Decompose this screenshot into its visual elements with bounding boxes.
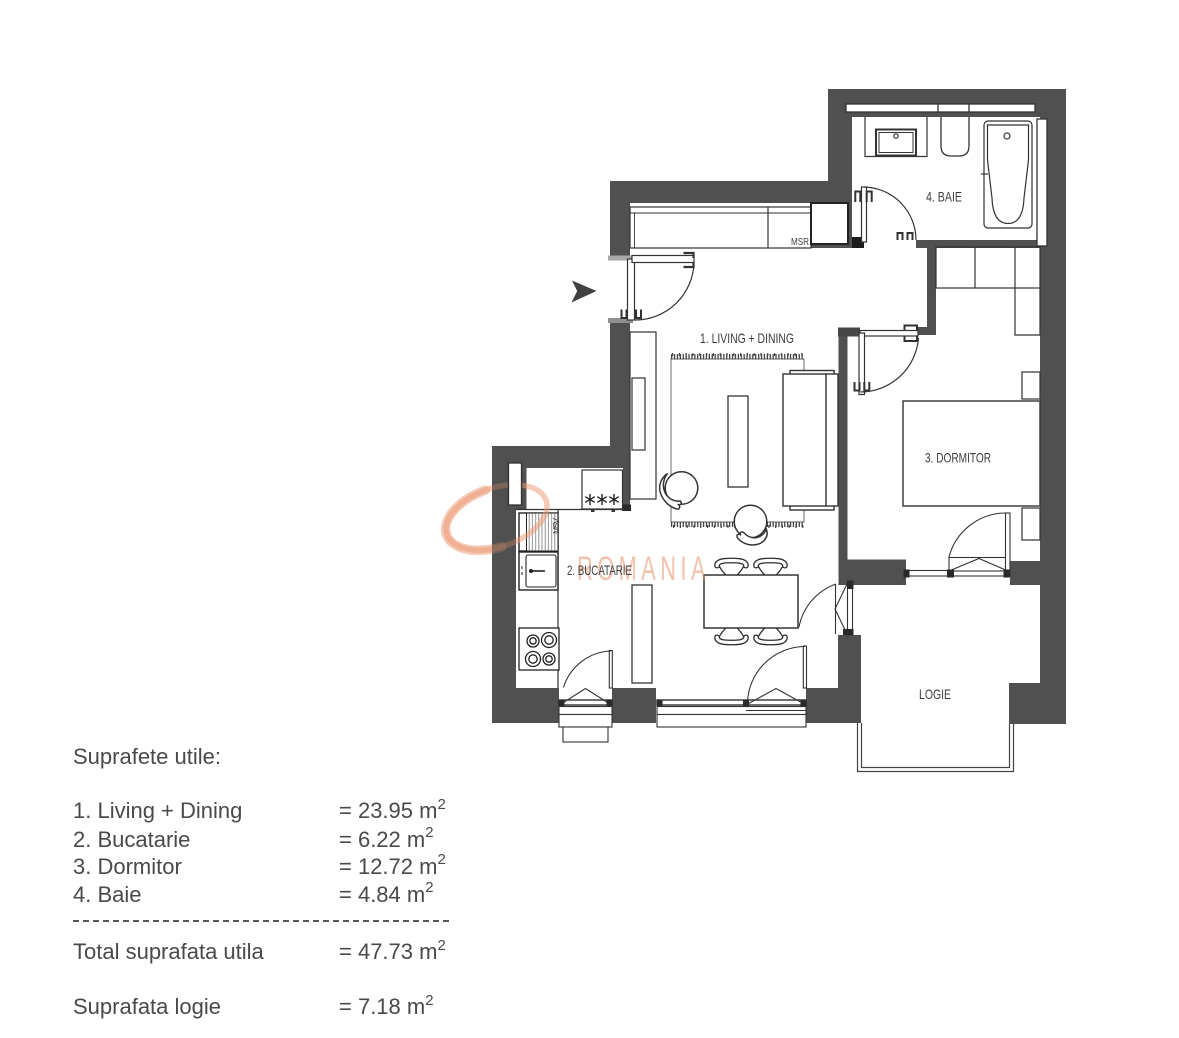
svg-text:MSV: MSV [551, 518, 561, 534]
svg-text:LOGIE: LOGIE [919, 686, 951, 702]
svg-text:2. BUCATARIE: 2. BUCATARIE [567, 562, 632, 578]
svg-text:MSR: MSR [791, 237, 809, 248]
svg-text:3. DORMITOR: 3. DORMITOR [925, 450, 991, 466]
svg-text:1. LIVING + DINING: 1. LIVING + DINING [700, 330, 794, 346]
svg-text:4. BAIE: 4. BAIE [926, 189, 962, 205]
